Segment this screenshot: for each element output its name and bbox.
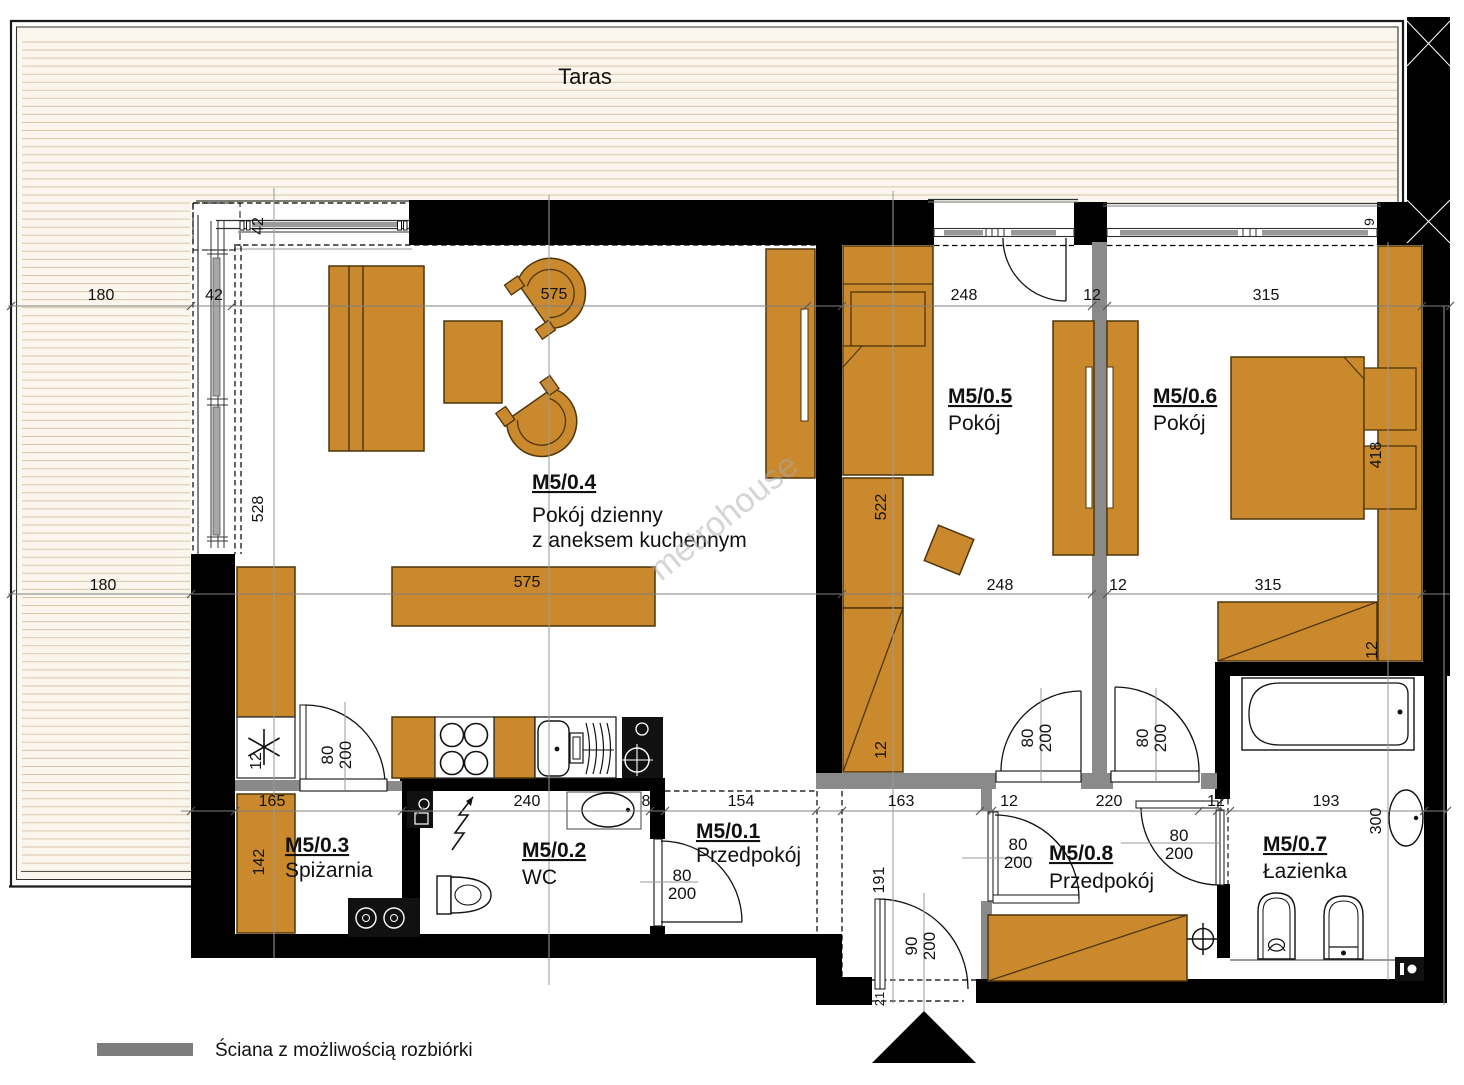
svg-text:575: 575 <box>514 574 541 591</box>
svg-text:Ściana z możliwością rozbiórki: Ściana z możliwością rozbiórki <box>215 1039 473 1061</box>
svg-text:80: 80 <box>1009 835 1028 854</box>
svg-text:200: 200 <box>336 741 355 769</box>
svg-text:80: 80 <box>673 866 692 885</box>
svg-text:80: 80 <box>1018 729 1037 748</box>
svg-text:193: 193 <box>1313 793 1340 810</box>
svg-text:9: 9 <box>1361 218 1377 226</box>
svg-text:M5/0.1: M5/0.1 <box>696 820 761 843</box>
svg-text:WC: WC <box>522 866 557 889</box>
svg-text:80: 80 <box>1133 729 1152 748</box>
svg-text:M5/0.7: M5/0.7 <box>1263 833 1327 856</box>
svg-text:12: 12 <box>1000 793 1018 810</box>
svg-text:80: 80 <box>318 746 337 765</box>
svg-text:240: 240 <box>514 793 541 810</box>
svg-text:418: 418 <box>1368 442 1385 469</box>
svg-text:Pokój dzienny: Pokój dzienny <box>532 504 663 527</box>
svg-text:165: 165 <box>259 793 286 810</box>
svg-text:M5/0.5: M5/0.5 <box>948 385 1013 408</box>
svg-text:M5/0.2: M5/0.2 <box>522 839 586 862</box>
svg-text:191: 191 <box>871 867 888 894</box>
svg-text:248: 248 <box>951 287 978 304</box>
svg-text:M5/0.6: M5/0.6 <box>1153 385 1217 408</box>
svg-text:220: 220 <box>1096 793 1123 810</box>
svg-text:Przedpokój: Przedpokój <box>696 844 801 867</box>
svg-text:300: 300 <box>1368 808 1385 835</box>
svg-text:163: 163 <box>888 793 915 810</box>
svg-text:8: 8 <box>642 793 651 810</box>
svg-text:200: 200 <box>668 884 696 903</box>
svg-text:200: 200 <box>1036 724 1055 752</box>
svg-text:12: 12 <box>1207 793 1225 810</box>
svg-text:Pokój: Pokój <box>1153 412 1206 435</box>
svg-text:315: 315 <box>1255 577 1282 594</box>
svg-text:315: 315 <box>1253 287 1280 304</box>
svg-text:Przedpokój: Przedpokój <box>1049 870 1154 893</box>
svg-text:12: 12 <box>873 741 890 759</box>
svg-text:M5/0.8: M5/0.8 <box>1049 842 1114 865</box>
svg-text:90: 90 <box>902 937 921 956</box>
svg-text:M5/0.3: M5/0.3 <box>285 834 349 857</box>
svg-text:248: 248 <box>987 577 1014 594</box>
svg-text:200: 200 <box>920 932 939 960</box>
svg-text:200: 200 <box>1165 844 1193 863</box>
svg-text:Pokój: Pokój <box>948 412 1001 435</box>
svg-text:180: 180 <box>90 577 117 594</box>
svg-text:180: 180 <box>88 287 115 304</box>
svg-text:M5/0.4: M5/0.4 <box>532 471 597 494</box>
svg-text:80: 80 <box>1170 826 1189 845</box>
svg-text:12: 12 <box>1083 287 1101 304</box>
svg-text:200: 200 <box>1004 853 1032 872</box>
svg-text:Łazienka: Łazienka <box>1263 860 1347 883</box>
svg-text:42: 42 <box>205 287 223 304</box>
svg-text:Taras: Taras <box>558 64 612 89</box>
svg-text:42: 42 <box>250 217 267 235</box>
svg-text:200: 200 <box>1151 724 1170 752</box>
svg-text:154: 154 <box>728 793 755 810</box>
svg-text:142: 142 <box>251 849 268 876</box>
svg-text:575: 575 <box>541 286 568 303</box>
svg-text:12: 12 <box>1364 641 1381 659</box>
svg-text:21: 21 <box>872 992 887 1006</box>
svg-text:Spiżarnia: Spiżarnia <box>285 859 373 882</box>
svg-text:12: 12 <box>1109 577 1127 594</box>
svg-text:528: 528 <box>250 496 267 523</box>
svg-text:12: 12 <box>248 752 265 770</box>
svg-text:522: 522 <box>873 494 890 521</box>
